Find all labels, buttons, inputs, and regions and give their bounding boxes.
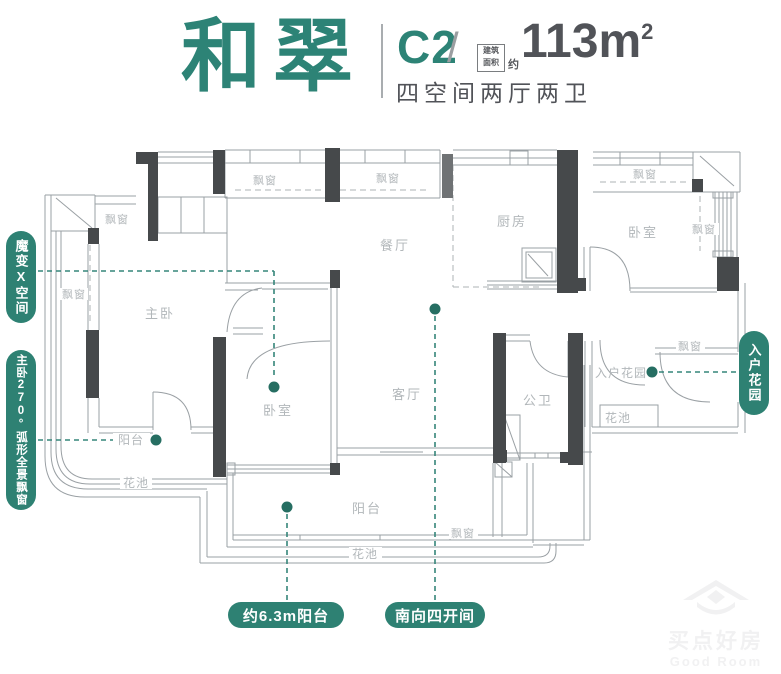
callout-entry-garden: 入户花园	[739, 331, 769, 415]
callout-bay-window-270: 主卧270°弧形全景飘窗	[6, 350, 36, 510]
label-baywindow-1: 飘窗	[105, 212, 129, 226]
label-bedroom-right: 卧室	[628, 225, 658, 240]
label-entry-garden: 入户花园	[595, 365, 647, 380]
watermark-cn-text: 买点好房	[655, 625, 777, 655]
callout-magic-space: 魔变X空间	[6, 231, 36, 323]
label-bathroom: 公卫	[523, 393, 553, 408]
label-balcony-left: 阳台	[118, 432, 144, 447]
watermark-house-icon	[661, 576, 771, 622]
callout-south-facing: 南向四开间	[385, 602, 485, 628]
label-baywindow-7: 飘窗	[678, 339, 702, 353]
watermark: 买点好房 Good Room	[655, 576, 777, 669]
callout-balcony-6-3m: 约6.3m阳台	[228, 602, 344, 628]
label-baywindow-6: 飘窗	[692, 222, 716, 236]
floorplan-drawing: 主卧 餐厅 厨房 卧室 卧室 客厅 公卫 入户花园 阳台 阳台 花池 花池 花池…	[0, 0, 781, 674]
watermark-en-text: Good Room	[655, 654, 777, 669]
room-labels: 主卧 餐厅 厨房 卧室 卧室 客厅 公卫 入户花园 阳台 阳台 花池 花池 花池…	[60, 167, 719, 561]
label-baywindow-5: 飘窗	[633, 167, 657, 181]
label-baywindow-8: 飘窗	[451, 526, 475, 540]
label-kitchen: 厨房	[497, 214, 527, 229]
label-flowerbed-south: 花池	[352, 546, 378, 561]
label-baywindow-2: 飘窗	[62, 287, 86, 301]
label-baywindow-3: 飘窗	[253, 173, 277, 187]
label-flowerbed-right: 花池	[605, 410, 631, 425]
label-baywindow-4: 飘窗	[376, 171, 400, 185]
label-bedroom-middle: 卧室	[263, 403, 293, 418]
label-balcony-south: 阳台	[352, 501, 382, 516]
label-flowerbed-left: 花池	[123, 475, 149, 490]
label-dining: 餐厅	[380, 238, 410, 253]
label-master-bedroom: 主卧	[145, 306, 175, 321]
floorplan-page: 和翠 C2 / 建筑 面积 约 113m2 四空间两厅两卫	[0, 0, 781, 674]
label-living-room: 客厅	[392, 387, 422, 402]
